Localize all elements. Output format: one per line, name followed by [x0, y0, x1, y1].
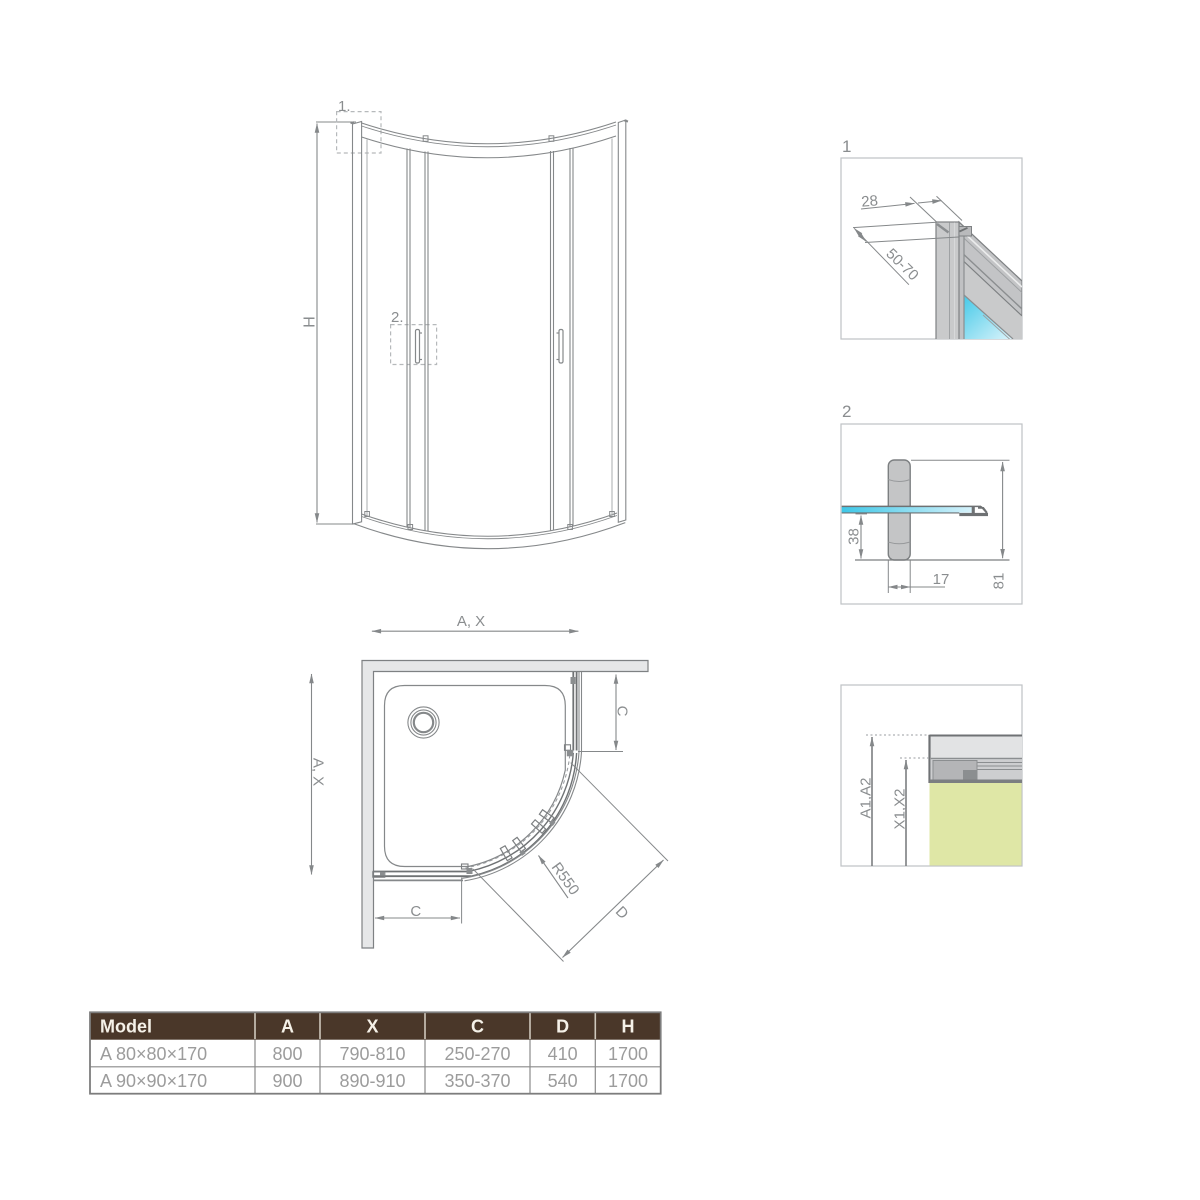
svg-text:A 90×90×170: A 90×90×170: [100, 1071, 207, 1091]
svg-text:C: C: [410, 903, 421, 920]
svg-text:790-810: 790-810: [339, 1044, 405, 1064]
svg-text:X1,X2: X1,X2: [891, 789, 908, 830]
svg-text:A, X: A, X: [457, 613, 485, 630]
svg-text:D: D: [612, 903, 632, 923]
svg-text:C: C: [471, 1017, 484, 1037]
svg-text:X: X: [366, 1017, 378, 1037]
svg-text:800: 800: [272, 1044, 302, 1064]
svg-text:28: 28: [861, 192, 879, 210]
svg-text:1700: 1700: [608, 1044, 648, 1064]
svg-text:1.: 1.: [338, 98, 351, 115]
svg-text:540: 540: [548, 1071, 578, 1091]
svg-text:350-370: 350-370: [444, 1071, 510, 1091]
svg-text:C: C: [614, 706, 631, 717]
svg-text:A 80×80×170: A 80×80×170: [100, 1044, 207, 1064]
svg-text:2: 2: [842, 402, 851, 421]
svg-text:17: 17: [933, 571, 950, 588]
svg-text:1700: 1700: [608, 1071, 648, 1091]
svg-text:38: 38: [845, 528, 862, 545]
svg-text:A, X: A, X: [310, 758, 327, 786]
svg-text:Model: Model: [100, 1017, 152, 1037]
svg-text:250-270: 250-270: [444, 1044, 510, 1064]
svg-text:A: A: [281, 1017, 294, 1037]
svg-text:D: D: [556, 1017, 569, 1037]
svg-text:900: 900: [272, 1071, 302, 1091]
svg-text:1: 1: [842, 137, 851, 156]
svg-text:890-910: 890-910: [339, 1071, 405, 1091]
svg-text:410: 410: [548, 1044, 578, 1064]
svg-text:R550: R550: [548, 859, 583, 898]
svg-text:2.: 2.: [391, 309, 404, 326]
svg-text:H: H: [302, 316, 319, 328]
svg-text:H: H: [622, 1017, 635, 1037]
svg-text:A1,A2: A1,A2: [858, 778, 875, 819]
svg-text:81: 81: [990, 573, 1007, 590]
